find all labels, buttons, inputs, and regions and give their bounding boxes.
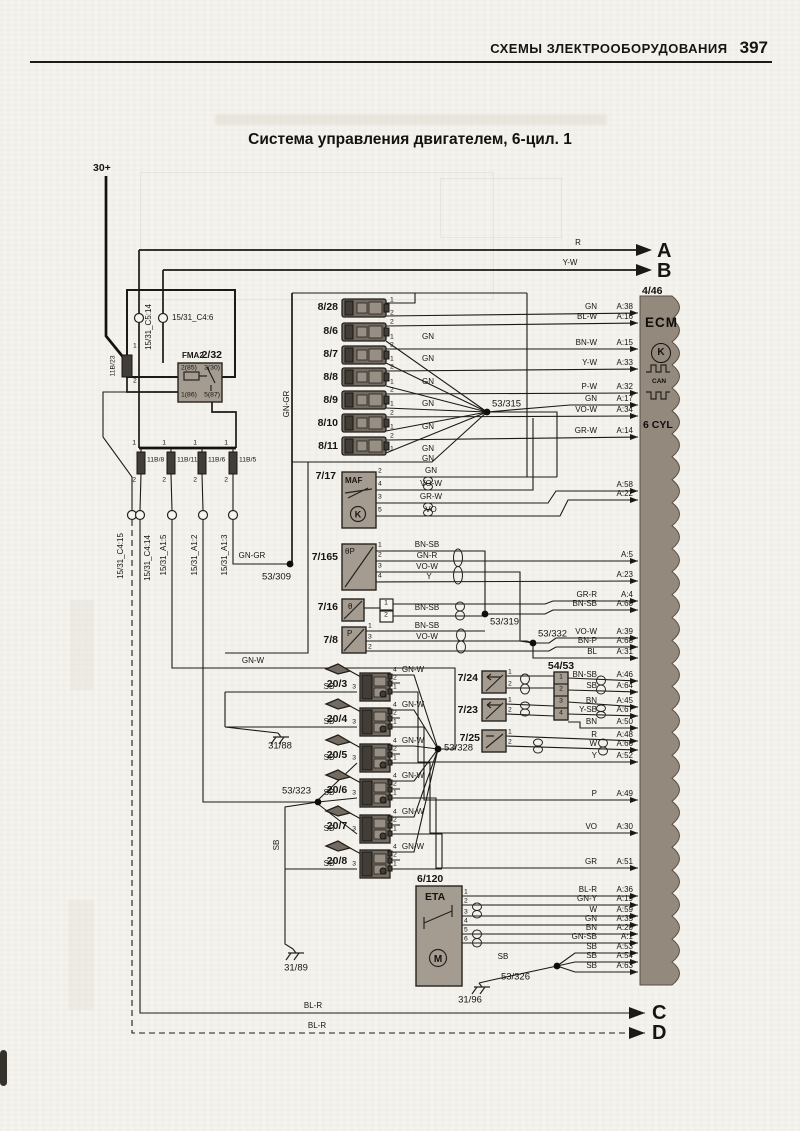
diagram-label: θ bbox=[348, 603, 352, 611]
diagram-label: BL-R bbox=[304, 1002, 322, 1010]
ecm-pin-label: A:59 bbox=[617, 906, 633, 914]
diagram-label: 1 bbox=[368, 624, 372, 631]
wire-color-label: P-W bbox=[581, 383, 597, 391]
diagram-label: 7/17 bbox=[316, 471, 336, 482]
diagram-label: ETA bbox=[425, 892, 445, 903]
wire-color-label: GN bbox=[585, 395, 597, 403]
diagram-label: GN bbox=[422, 378, 434, 386]
diagram-label: 3 bbox=[352, 862, 356, 869]
ecm-pin-label: A:5 bbox=[621, 551, 633, 559]
wire-color-label: P bbox=[592, 790, 597, 798]
diagram-label: 15/31_C4:14 bbox=[144, 535, 152, 581]
wire-color-label: GR-R bbox=[577, 591, 597, 599]
diagram-label: 1 bbox=[378, 543, 382, 550]
ecm-pin-label: A:17 bbox=[617, 395, 633, 403]
diagram-label: 7/23 bbox=[458, 705, 478, 716]
diagram-label: 2 bbox=[132, 478, 136, 485]
diagram-label: 2 bbox=[508, 708, 512, 715]
injector-icon bbox=[342, 391, 389, 409]
diagram-label: 3 bbox=[352, 720, 356, 727]
diagram-label: BN-SB bbox=[415, 541, 439, 549]
ecm-pin-label: A:19 bbox=[617, 895, 633, 903]
ecm-pin-label: A:49 bbox=[617, 790, 633, 798]
diagram-label: 1 bbox=[508, 698, 512, 705]
diagram-label: 53/328 bbox=[444, 743, 473, 753]
diagram-label: VO-W bbox=[416, 563, 438, 571]
diagram-label: 54/53 bbox=[548, 661, 574, 672]
diagram-label: 3 bbox=[368, 635, 372, 642]
ecm-pin-label: A:45 bbox=[617, 697, 633, 705]
diagram-label: 3 bbox=[352, 827, 356, 834]
diagram-label: R bbox=[575, 239, 581, 247]
diagram-label: 2 bbox=[390, 311, 394, 318]
ecm-pin-label: A:53 bbox=[617, 943, 633, 951]
diagram-label: 7/8 bbox=[323, 635, 338, 646]
diagram-label: 6 bbox=[464, 937, 468, 944]
wire-color-label: R bbox=[591, 731, 597, 739]
diagram-label: 7/25 bbox=[460, 733, 480, 744]
injector-icon bbox=[342, 346, 389, 364]
wire-color-label: VO-W bbox=[575, 628, 597, 636]
wire-color-label: BN-P bbox=[578, 637, 597, 645]
diagram-label: 1 bbox=[162, 441, 166, 448]
diagram-label: SB bbox=[498, 953, 509, 961]
diagram-label: 3 bbox=[559, 699, 563, 706]
diagram-label: 2 bbox=[464, 899, 468, 906]
diagram-label: 1 bbox=[393, 720, 397, 727]
diagram-label: 4 bbox=[464, 919, 468, 926]
diagram-label: GN bbox=[422, 423, 434, 431]
wire-color-label: SB bbox=[586, 682, 597, 690]
diagram-label: 15/31_C4:6 bbox=[172, 314, 213, 322]
ecm-pin-label: A:35 bbox=[617, 915, 633, 923]
diagram-label: GN bbox=[422, 333, 434, 341]
ecm-pin-label: A:64 bbox=[617, 682, 633, 690]
scanned-manual-page: { "page": { "header": "СХЕМЫ ЗЛЕКТРООБОР… bbox=[0, 0, 800, 1131]
diagram-label: 31/88 bbox=[268, 741, 292, 751]
ecm-pin-label: A:14 bbox=[617, 427, 633, 435]
diagram-label: 15/31_C4:15 bbox=[117, 533, 125, 579]
diagram-label: 2 bbox=[508, 740, 512, 747]
diagram-label: 3 bbox=[352, 756, 356, 763]
ecm-pin-label: A:68 bbox=[617, 637, 633, 645]
diagram-label: GN bbox=[425, 467, 437, 475]
ecm-pin-label: A:4 bbox=[621, 591, 633, 599]
wire-color-label: BL-W bbox=[577, 313, 597, 321]
diagram-label: 31/96 bbox=[458, 995, 482, 1005]
diagram-label: 1 bbox=[393, 827, 397, 834]
diagram-label: 3 bbox=[464, 910, 468, 917]
wire-color-label: GN bbox=[585, 915, 597, 923]
diagram-label: 15/31_A1:3 bbox=[221, 535, 229, 576]
diagram-label: 1 bbox=[393, 791, 397, 798]
diagram-label: GN-W bbox=[402, 737, 424, 745]
wire-color-label: BN-W bbox=[576, 339, 597, 347]
diagram-label: 53/332 bbox=[538, 629, 567, 639]
diagram-label: 2 bbox=[393, 782, 397, 789]
diagram-label: 8/9 bbox=[323, 395, 338, 406]
wire-color-label: BL bbox=[587, 648, 597, 656]
diagram-label: C bbox=[652, 1003, 666, 1023]
diagram-label: 2 bbox=[390, 343, 394, 350]
wire-color-label: BL-R bbox=[579, 886, 597, 894]
diagram-label: GN-W bbox=[402, 843, 424, 851]
diagram-label: 2 bbox=[224, 478, 228, 485]
diagram-label: BN-SB bbox=[415, 622, 439, 630]
ecm-pin-label: A:34 bbox=[617, 406, 633, 414]
diagram-label: SB bbox=[324, 718, 335, 726]
diagram-label: 8/10 bbox=[318, 418, 338, 429]
injector-icon bbox=[342, 414, 389, 432]
diagram-label: 8/11 bbox=[318, 441, 338, 452]
diagram-label: 5 bbox=[464, 928, 468, 935]
wire-color-label: BN bbox=[586, 924, 597, 932]
diagram-label: 5 bbox=[378, 508, 382, 515]
wire-color-label: VO bbox=[585, 823, 597, 831]
injector-icon bbox=[342, 299, 389, 317]
wire-color-label: GN-Y bbox=[577, 895, 597, 903]
diagram-label: 8/7 bbox=[323, 349, 338, 360]
ecm-pin-label: A:60 bbox=[617, 600, 633, 608]
diagram-label: 53/326 bbox=[501, 972, 530, 982]
diagram-label: 4 bbox=[393, 668, 397, 675]
diagram-label: GN bbox=[422, 455, 434, 463]
diagram-label: 6/120 bbox=[417, 874, 443, 885]
diagram-label: 1 bbox=[508, 730, 512, 737]
wire-color-label: GR-W bbox=[575, 427, 597, 435]
diagram-label: GN-W bbox=[402, 808, 424, 816]
wire-color-label: Y bbox=[592, 752, 597, 760]
diagram-label: 1 bbox=[393, 756, 397, 763]
diagram-label: 1 bbox=[390, 298, 394, 305]
ecm-pin-label: A:1 bbox=[621, 933, 633, 941]
diagram-label: 3 bbox=[352, 791, 356, 798]
diagram-label: GN-W bbox=[402, 772, 424, 780]
diagram-label: 2 bbox=[378, 553, 382, 560]
diagram-label: 3 bbox=[378, 495, 382, 502]
diagram-label: 2 bbox=[390, 434, 394, 441]
diagram-label: 4 bbox=[393, 774, 397, 781]
diagram-label: 53/323 bbox=[282, 786, 311, 796]
diagram-label: GN bbox=[422, 355, 434, 363]
diagram-label: 2 bbox=[162, 478, 166, 485]
diagram-label: 11B/5 bbox=[239, 458, 256, 465]
diagram-label: 2 bbox=[384, 613, 388, 620]
ecm-name: ECM bbox=[645, 315, 678, 330]
diagram-label: 1 bbox=[559, 675, 563, 682]
diagram-label: 15/31_A1:2 bbox=[191, 535, 199, 576]
diagram-label: MAF bbox=[345, 477, 362, 485]
diagram-label: 2 bbox=[508, 682, 512, 689]
diagram-label: 2 bbox=[393, 711, 397, 718]
diagram-label: GN bbox=[422, 400, 434, 408]
wire-color-label: Y-W bbox=[582, 359, 597, 367]
diagram-label: FMA2 bbox=[182, 352, 204, 360]
diagram-label: GR-W bbox=[420, 493, 442, 501]
wire-color-label: W bbox=[589, 740, 597, 748]
diagram-label: 30+ bbox=[93, 163, 111, 174]
ecm-pin-label: A:39 bbox=[617, 628, 633, 636]
diagram-label: 2 bbox=[393, 676, 397, 683]
diagram-label: 2 bbox=[390, 388, 394, 395]
ecm-pin-label: A:38 bbox=[617, 303, 633, 311]
diagram-label: 1 bbox=[390, 425, 394, 432]
injector-icon bbox=[342, 323, 389, 341]
ecm-can-label: CAN bbox=[652, 378, 666, 385]
diagram-label: 5(87) bbox=[204, 393, 220, 400]
diagram-label: SB bbox=[324, 825, 335, 833]
diagram-label: 1 bbox=[384, 601, 388, 608]
diagram-label: 8/28 bbox=[318, 302, 338, 313]
wire-color-label: GR bbox=[585, 858, 597, 866]
diagram-label: SB bbox=[273, 840, 281, 851]
diagram-label: A bbox=[657, 241, 671, 261]
diagram-label: VO-W bbox=[420, 480, 442, 488]
diagram-label: 1 bbox=[224, 441, 228, 448]
diagram-label: 8/6 bbox=[323, 326, 338, 337]
diagram-label: 2 bbox=[393, 818, 397, 825]
diagram-label: BN-SB bbox=[415, 604, 439, 612]
ecm-pin-label: A:63 bbox=[617, 962, 633, 970]
ecm-pin-label: A:36 bbox=[617, 886, 633, 894]
page: СХЕМЫ ЗЛЕКТРООБОРУДОВАНИЯ397 Система упр… bbox=[0, 0, 800, 1131]
diagram-label: 1 bbox=[464, 890, 468, 897]
diagram-label: 15/31_C5:14 bbox=[145, 304, 153, 350]
ecm-pin-label: A:48 bbox=[617, 731, 633, 739]
diagram-label: GN-GR bbox=[239, 552, 266, 560]
diagram-label: 4 bbox=[393, 810, 397, 817]
ecm-pin-label: A:23 bbox=[617, 571, 633, 579]
wire-color-label: W bbox=[589, 906, 597, 914]
wire-color-label: GN-SB bbox=[572, 933, 597, 941]
diagram-label: 2(85) bbox=[181, 366, 197, 373]
diagram-label: 4 bbox=[378, 574, 382, 581]
eta-motor-icon: M bbox=[434, 954, 442, 965]
diagram-label: 4 bbox=[393, 739, 397, 746]
diagram-label: 15/31_A1:5 bbox=[160, 535, 168, 576]
diagram-label: 3(30) bbox=[204, 366, 220, 373]
diagram-label: 1 bbox=[390, 380, 394, 387]
ecm-cyl-label: 6 CYL bbox=[643, 419, 673, 431]
ecm-pin-label: A:16 bbox=[617, 313, 633, 321]
diagram-label: GN-W bbox=[242, 657, 264, 665]
ecm-k-icon: K bbox=[651, 343, 671, 363]
ecm-pin-label: A:46 bbox=[617, 671, 633, 679]
ecm-pin-label: A:58 bbox=[617, 481, 633, 489]
ecm-pin-label: A:20 bbox=[617, 924, 633, 932]
diagram-label: 2 bbox=[559, 687, 563, 694]
diagram-label: GN-GR bbox=[283, 391, 291, 418]
diagram-label: P bbox=[347, 630, 352, 638]
wire-color-label: SB bbox=[586, 962, 597, 970]
diagram-label: 53/319 bbox=[490, 617, 519, 627]
ecm-strip bbox=[640, 296, 680, 985]
diagram-label: 1 bbox=[193, 441, 197, 448]
diagram-label: 4 bbox=[559, 711, 563, 718]
diagram-label: B bbox=[657, 261, 671, 281]
ecm-pin-label: A:67 bbox=[617, 706, 633, 714]
diagram-label: θP bbox=[345, 548, 355, 556]
diagram-label: 2 bbox=[393, 747, 397, 754]
diagram-label: GN bbox=[422, 445, 434, 453]
ecm-pin-label: A:32 bbox=[617, 383, 633, 391]
wire-color-label: BN bbox=[586, 697, 597, 705]
diagram-label: 4 bbox=[378, 482, 382, 489]
diagram-label: 2 bbox=[390, 320, 394, 327]
ecm-code: 4/46 bbox=[642, 285, 662, 297]
diagram-label: 11B/23 bbox=[111, 355, 118, 376]
diagram-label: 1 bbox=[132, 441, 136, 448]
ecm-pin-label: A:66 bbox=[617, 740, 633, 748]
wire-color-label: SB bbox=[586, 943, 597, 951]
diagram-label: 3 bbox=[378, 564, 382, 571]
diagram-label: 2 bbox=[193, 478, 197, 485]
diagram-label: 1 bbox=[390, 447, 394, 454]
diagram-label: 2 bbox=[393, 853, 397, 860]
diagram-label: 2 bbox=[133, 379, 137, 386]
ecm-pin-label: A:52 bbox=[617, 752, 633, 760]
diagram-label: 11B/11 bbox=[177, 458, 198, 465]
diagram-label: GN-R bbox=[417, 552, 437, 560]
wire-color-label: BN-SB bbox=[573, 600, 597, 608]
wire-color-label: BN bbox=[586, 718, 597, 726]
diagram-label: Y-W bbox=[563, 259, 578, 267]
diagram-label: 3 bbox=[352, 685, 356, 692]
diagram-label: 2 bbox=[390, 365, 394, 372]
diagram-label: VO bbox=[425, 506, 437, 514]
ecm-pin-label: A:15 bbox=[617, 339, 633, 347]
wire-color-label: GN bbox=[585, 303, 597, 311]
diagram-label: 53/309 bbox=[262, 572, 291, 582]
diagram-label: 11B/8 bbox=[147, 458, 164, 465]
ground-symbol-31-89 bbox=[286, 949, 304, 960]
diagram-label: VO-W bbox=[416, 633, 438, 641]
diagram-label: 8/8 bbox=[323, 372, 338, 383]
diagram-label: 2 bbox=[390, 411, 394, 418]
diagram-label: SB bbox=[324, 683, 335, 691]
diagram-label: GN-W bbox=[402, 701, 424, 709]
diagram-label: 4 bbox=[393, 845, 397, 852]
diagram-label: BL-R bbox=[308, 1022, 326, 1030]
wire-color-label: SB bbox=[586, 952, 597, 960]
diagram-label: SB bbox=[324, 754, 335, 762]
diagram-label: 1 bbox=[390, 335, 394, 342]
injector-icon bbox=[342, 368, 389, 386]
ecm-pin-label: A:33 bbox=[617, 359, 633, 367]
injector-icon bbox=[342, 437, 389, 455]
wire-color-label: Y-SB bbox=[579, 706, 597, 714]
wire-color-label: VO-W bbox=[575, 406, 597, 414]
ecm-pin-label: A:54 bbox=[617, 952, 633, 960]
diagram-label: 2 bbox=[368, 645, 372, 652]
ground-symbol-31-96 bbox=[472, 983, 490, 994]
ecm-pin-label: A:50 bbox=[617, 718, 633, 726]
diagram-label: 1 bbox=[390, 402, 394, 409]
ecm-pin-label: A:31 bbox=[617, 648, 633, 656]
diagram-label: 7/165 bbox=[312, 552, 338, 563]
diagram-label: 4 bbox=[393, 703, 397, 710]
maf-k-icon: K bbox=[355, 510, 362, 520]
ecm-pin-label: A:51 bbox=[617, 858, 633, 866]
diagram-label: 7/16 bbox=[318, 602, 338, 613]
diagram-label: 1 bbox=[393, 685, 397, 692]
diagram-label: 2 bbox=[378, 469, 382, 476]
diagram-label: 2/32 bbox=[202, 350, 222, 361]
diagram-label: 1(86) bbox=[181, 393, 197, 400]
wire-color-label: BN-SB bbox=[573, 671, 597, 679]
diagram-label: Y bbox=[426, 573, 431, 581]
diagram-label: 1 bbox=[393, 862, 397, 869]
diagram-label: 1 bbox=[390, 357, 394, 364]
diagram-label: 1 bbox=[133, 344, 137, 351]
diagram-label: D bbox=[652, 1023, 666, 1043]
ecm-pin-label: A:30 bbox=[617, 823, 633, 831]
diagram-label: 11B/6 bbox=[208, 458, 225, 465]
diagram-label: SB bbox=[324, 789, 335, 797]
diagram-label: 31/89 bbox=[284, 963, 308, 973]
ecm-pin-label: A:22 bbox=[617, 490, 633, 498]
diagram-label: 7/24 bbox=[458, 673, 478, 684]
diagram-label: 1 bbox=[508, 670, 512, 677]
diagram-label: GN-W bbox=[402, 666, 424, 674]
diagram-label: 53/315 bbox=[492, 399, 521, 409]
diagram-label: SB bbox=[324, 860, 335, 868]
